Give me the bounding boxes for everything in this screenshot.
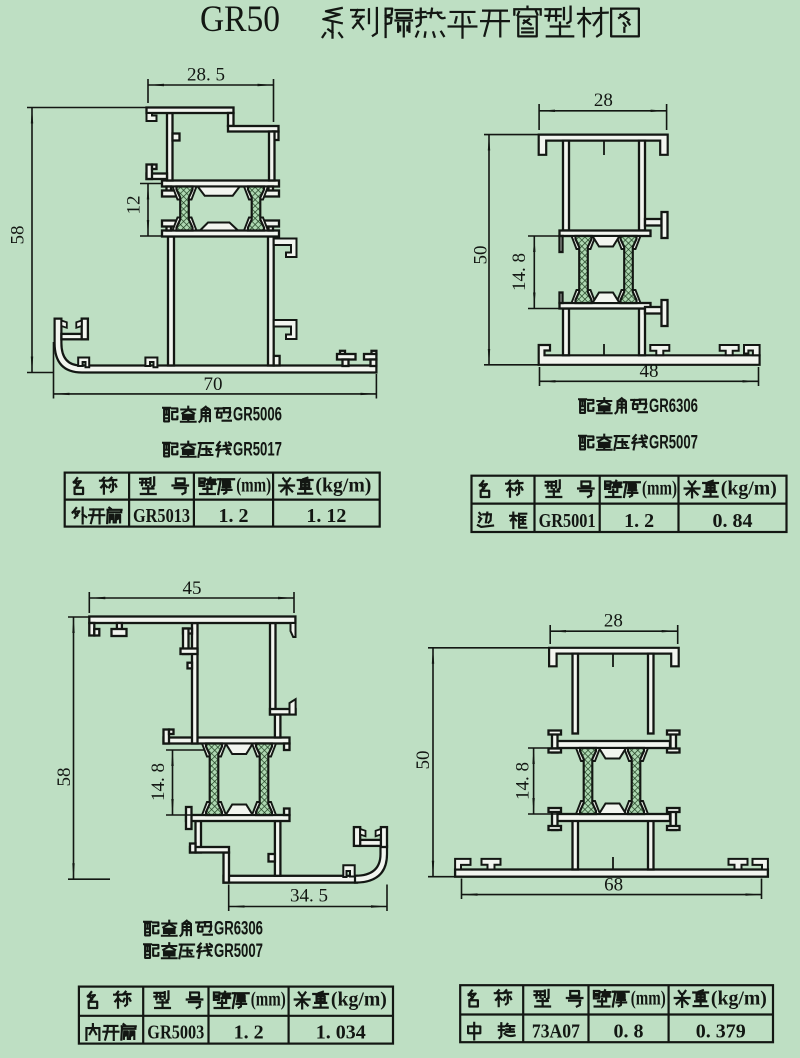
svg-text:GR5006: GR5006 — [233, 404, 282, 426]
svg-text:50: 50 — [413, 751, 434, 770]
svg-text:GR50: GR50 — [200, 0, 280, 40]
svg-text:(mm): (mm) — [251, 990, 286, 1011]
svg-text:0. 379: 0. 379 — [696, 1020, 746, 1042]
svg-text:GR5003: GR5003 — [147, 1022, 204, 1044]
svg-text:(kg/m): (kg/m) — [721, 479, 777, 500]
svg-text:1. 12: 1. 12 — [306, 505, 346, 527]
svg-text:(mm): (mm) — [631, 988, 666, 1009]
svg-text:GR6306: GR6306 — [214, 918, 263, 940]
svg-text:28. 5: 28. 5 — [187, 65, 225, 86]
svg-text:58: 58 — [8, 226, 29, 245]
svg-text:(mm): (mm) — [642, 479, 677, 500]
svg-text:GR6306: GR6306 — [649, 395, 698, 417]
svg-text:0. 84: 0. 84 — [713, 510, 753, 532]
svg-text:GR5001: GR5001 — [539, 510, 596, 532]
svg-text:28: 28 — [594, 90, 613, 111]
svg-text:14. 8: 14. 8 — [148, 763, 169, 801]
svg-text:(kg/m): (kg/m) — [711, 988, 767, 1009]
svg-text:GR5017: GR5017 — [233, 439, 282, 461]
svg-text:70: 70 — [204, 374, 223, 395]
svg-text:28: 28 — [604, 611, 623, 632]
svg-text:GR5007: GR5007 — [214, 940, 263, 962]
svg-text:48: 48 — [640, 361, 659, 382]
svg-text:14. 8: 14. 8 — [509, 253, 530, 291]
svg-text:58: 58 — [54, 768, 75, 787]
svg-text:GR5007: GR5007 — [649, 432, 698, 454]
svg-text:0. 8: 0. 8 — [614, 1020, 644, 1042]
svg-text:45: 45 — [183, 578, 202, 599]
svg-text:1. 034: 1. 034 — [316, 1022, 366, 1044]
svg-text:12: 12 — [124, 196, 145, 215]
svg-text:(mm): (mm) — [236, 476, 271, 497]
svg-text:73A07: 73A07 — [532, 1020, 580, 1042]
svg-text:68: 68 — [604, 875, 623, 896]
svg-text:1. 2: 1. 2 — [219, 505, 249, 527]
svg-text:(kg/m): (kg/m) — [315, 476, 371, 497]
svg-text:(kg/m): (kg/m) — [331, 990, 387, 1011]
svg-text:14. 8: 14. 8 — [513, 762, 534, 800]
svg-text:1. 2: 1. 2 — [234, 1022, 264, 1044]
svg-text:50: 50 — [471, 246, 492, 265]
svg-text:34. 5: 34. 5 — [290, 886, 328, 907]
svg-text:1. 2: 1. 2 — [624, 510, 654, 532]
svg-text:GR5013: GR5013 — [133, 505, 190, 527]
